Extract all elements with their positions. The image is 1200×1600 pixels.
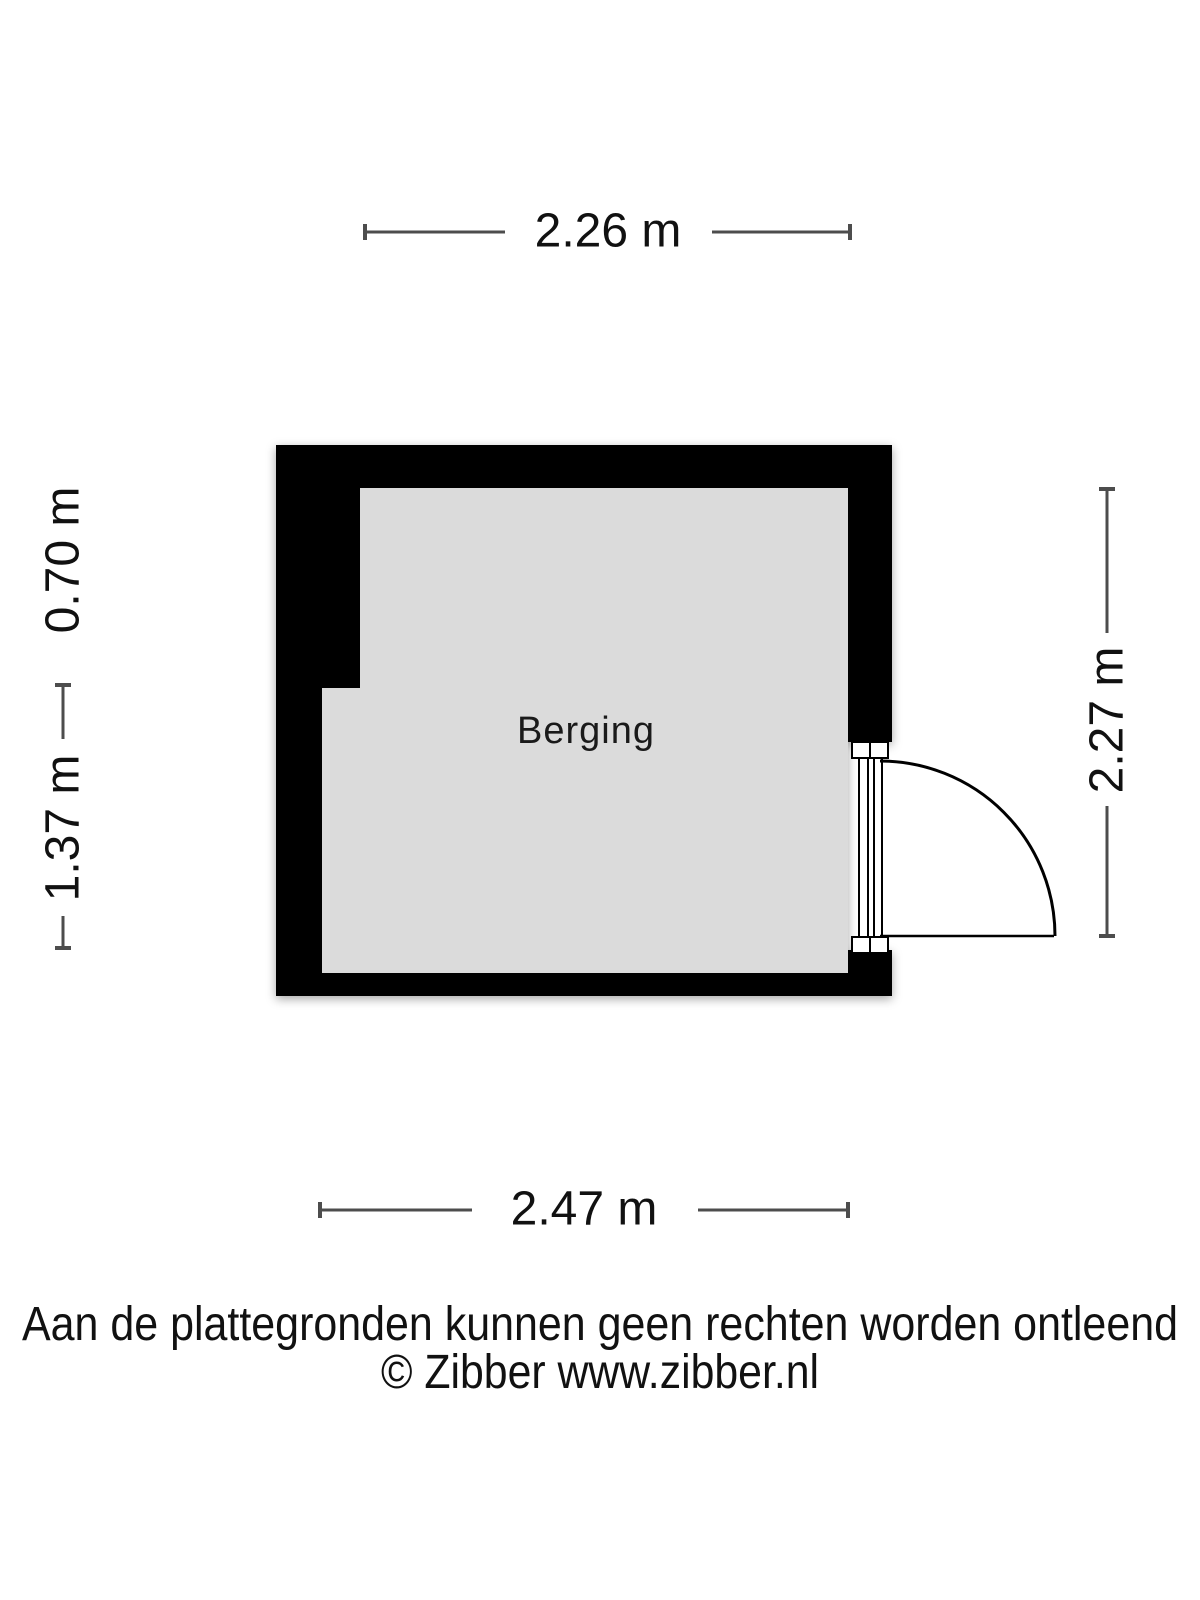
dimension-top-label: 2.26 m — [535, 205, 682, 258]
dimension-right: 2.27 m — [1081, 489, 1134, 936]
footer-disclaimer: Aan de plattegronden kunnen geen rechten… — [22, 1298, 1178, 1351]
dimension-bottom-label: 2.47 m — [511, 1183, 658, 1236]
dimension-bottom: 2.47 m — [320, 1183, 848, 1236]
door — [852, 742, 1055, 953]
floorplan-drawing: Berging 2.26 m 2.47 m 0.70 m 1.37 m — [0, 0, 1200, 1600]
door-swing-arc — [880, 761, 1055, 936]
room-label: Berging — [517, 710, 655, 752]
wall-right-upper — [848, 445, 892, 742]
dimension-top: 2.26 m — [365, 205, 850, 258]
wall-top — [276, 445, 892, 488]
footer-credit: © Zibber www.zibber.nl — [381, 1346, 819, 1399]
dimension-left-upper-label: 0.70 m — [37, 487, 90, 634]
dimension-left: 0.70 m 1.37 m — [37, 487, 90, 948]
footer: Aan de plattegronden kunnen geen rechten… — [22, 1298, 1178, 1399]
dimension-left-lower-label: 1.37 m — [37, 755, 90, 902]
dimension-right-label: 2.27 m — [1081, 647, 1134, 794]
wall-right-lower — [848, 950, 892, 996]
floorplan-page: Berging 2.26 m 2.47 m 0.70 m 1.37 m — [0, 0, 1200, 1600]
wall-bottom — [276, 973, 892, 996]
wall-left-upper — [276, 445, 360, 688]
wall-left-lower — [276, 688, 322, 996]
